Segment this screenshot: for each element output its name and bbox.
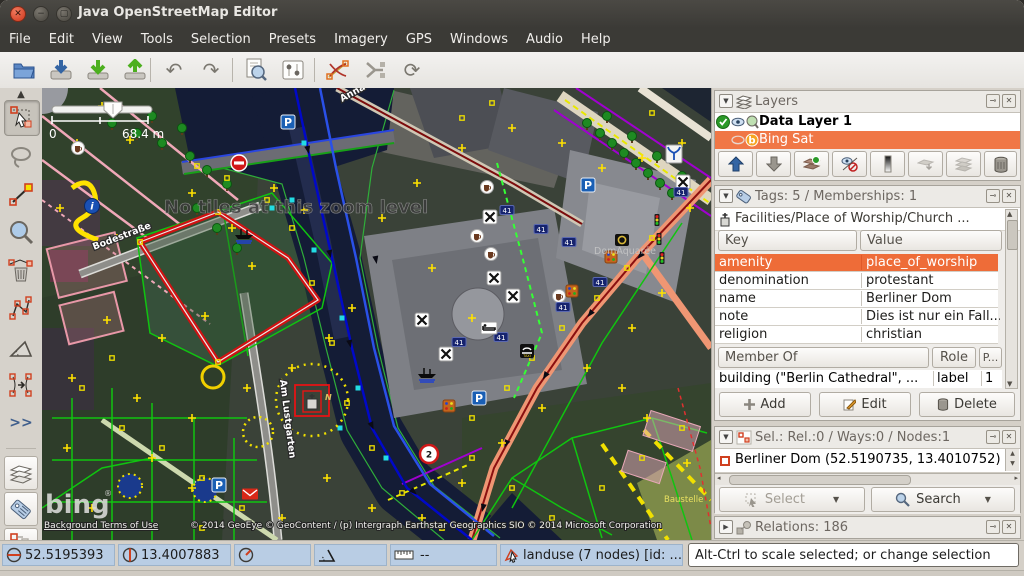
terms-of-use-link[interactable]: Background Terms of Use bbox=[44, 521, 159, 531]
tag-row[interactable]: nameBerliner Dom bbox=[715, 290, 998, 308]
select-button[interactable]: Select ▼ bbox=[719, 487, 865, 512]
update-data-icon[interactable]: ⟳ bbox=[396, 55, 428, 85]
toggle-visibility-button[interactable] bbox=[832, 151, 867, 177]
angle-field bbox=[314, 544, 387, 566]
draw-node-tool-button[interactable] bbox=[4, 178, 38, 212]
delete-tool-button[interactable] bbox=[4, 254, 38, 288]
heading-icon bbox=[238, 547, 254, 563]
collapse-icon[interactable]: ▼ bbox=[719, 189, 733, 203]
dropdown-arrow-icon: ▼ bbox=[833, 495, 839, 504]
sidebar-separator bbox=[6, 448, 36, 449]
longitude-field: 13.4007883 bbox=[118, 544, 231, 566]
copyright-text: © 2014 GeoEye © GeoContent / (p) Intergr… bbox=[190, 521, 662, 531]
title-bar: ✕ − ▢ Java OpenStreetMap Editor bbox=[0, 0, 1024, 28]
minimize-button[interactable]: − bbox=[33, 6, 49, 22]
dropdown-arrow-icon: ▼ bbox=[985, 495, 991, 504]
angle-icon bbox=[318, 548, 336, 563]
node-icon bbox=[719, 455, 731, 467]
delete-tag-button[interactable]: Delete bbox=[919, 392, 1015, 417]
relations-panel-header: ▶ Relations: 186 ⊸ ✕ bbox=[715, 517, 1020, 538]
latitude-field: 52.5195393 bbox=[2, 544, 115, 566]
sticky-pin-icon[interactable]: ⊸ bbox=[986, 520, 1000, 534]
panel-close-icon[interactable]: ✕ bbox=[1002, 430, 1016, 444]
heading-field bbox=[234, 544, 311, 566]
sticky-pin-icon[interactable]: ⊸ bbox=[986, 189, 1000, 203]
selection-panel-header: ▼ Sel.: Rel.:0 / Ways:0 / Nodes:1 ⊸ ✕ bbox=[715, 427, 1020, 449]
ruler-icon bbox=[394, 549, 414, 561]
hovered-object-field: landuse (7 nodes) [id: ... bbox=[500, 544, 683, 566]
tags-panel-title: Tags: 5 / Memberships: 1 bbox=[755, 189, 917, 204]
tag-row[interactable]: religionchristian bbox=[715, 326, 998, 344]
tags-panel-header: ▼ Tags: 5 / Memberships: 1 ⊸ ✕ bbox=[715, 186, 1020, 208]
menu-presets[interactable]: Presets bbox=[260, 28, 325, 47]
layers-dialog-button[interactable] bbox=[4, 456, 38, 490]
menu-audio[interactable]: Audio bbox=[517, 28, 572, 47]
selection-hscrollbar[interactable]: ◂ ▸ bbox=[715, 473, 1020, 485]
unglue-tool-button[interactable] bbox=[4, 292, 38, 326]
longitude-icon bbox=[122, 547, 138, 563]
activate-layer-button[interactable] bbox=[946, 151, 981, 177]
svg-text:b: b bbox=[748, 136, 755, 147]
tags-icon bbox=[736, 189, 752, 204]
position-header[interactable]: P... bbox=[979, 347, 1002, 368]
role-header[interactable]: Role bbox=[932, 347, 976, 368]
layer-row-data-layer[interactable]: Data Layer 1 bbox=[715, 113, 1020, 131]
active-layer-check-icon bbox=[717, 116, 730, 129]
layers-panel-header: ▼ Layers ⊸ ✕ bbox=[715, 91, 1020, 113]
josm-window: ✕ − ▢ Java OpenStreetMap Editor FileEdit… bbox=[0, 0, 1024, 576]
membership-row[interactable]: building ("Berlin Cathedral", ... label … bbox=[715, 370, 1002, 388]
menu-help[interactable]: Help bbox=[572, 28, 620, 47]
svg-text:i: i bbox=[90, 202, 94, 213]
merge-tool-button[interactable] bbox=[4, 368, 38, 402]
main-toolbar: ↶ ↷ ⟳ bbox=[0, 52, 1024, 89]
domaquaree-label: DomAquarée bbox=[594, 246, 656, 257]
latitude-icon bbox=[6, 547, 22, 563]
delete-layer-button[interactable] bbox=[984, 151, 1017, 177]
menu-edit[interactable]: Edit bbox=[40, 28, 83, 47]
preferences-icon[interactable] bbox=[277, 55, 309, 85]
menu-tools[interactable]: Tools bbox=[132, 28, 182, 47]
more-tools-button[interactable]: >> bbox=[4, 406, 38, 440]
split-way-icon[interactable] bbox=[322, 55, 354, 85]
upload-data-icon[interactable] bbox=[119, 55, 151, 85]
relations-panel: ▶ Relations: 186 ⊸ ✕ bbox=[714, 516, 1021, 539]
download-data-icon[interactable] bbox=[82, 55, 114, 85]
collapse-icon[interactable]: ▼ bbox=[719, 430, 733, 444]
layer-row-bing-sat[interactable]: b Bing Sat bbox=[715, 131, 1020, 149]
download-osm-icon[interactable] bbox=[45, 55, 77, 85]
expand-icon[interactable]: ▶ bbox=[719, 520, 733, 534]
toolbar-separator bbox=[232, 58, 233, 82]
svg-text:68.4 m: 68.4 m bbox=[122, 127, 164, 141]
menu-gps[interactable]: GPS bbox=[397, 28, 441, 47]
zoom-tool-button[interactable] bbox=[4, 216, 38, 250]
svg-text:2: 2 bbox=[426, 451, 432, 461]
layer-name: Bing Sat bbox=[759, 132, 813, 147]
duplicate-layer-button[interactable] bbox=[908, 151, 943, 177]
merge-layer-button[interactable] bbox=[794, 151, 829, 177]
list-spinner[interactable]: ▲▼ bbox=[1005, 449, 1019, 471]
panel-close-icon[interactable]: ✕ bbox=[1002, 189, 1016, 203]
relations-panel-title: Relations: 186 bbox=[755, 520, 848, 535]
undo-icon[interactable]: ↶ bbox=[158, 55, 190, 85]
status-bar: 52.5195393 13.4007883 -- landuse (7 node… bbox=[0, 540, 1024, 571]
layer-name: Data Layer 1 bbox=[759, 114, 852, 129]
selection-panel-title: Sel.: Rel.:0 / Ways:0 / Nodes:1 bbox=[755, 430, 950, 445]
panel-close-icon[interactable]: ✕ bbox=[1002, 520, 1016, 534]
move-layer-up-button[interactable] bbox=[718, 151, 753, 177]
add-tag-button[interactable]: Add bbox=[719, 392, 811, 417]
edit-toolbar: ▲ >> bbox=[0, 88, 43, 540]
bing-logo: bing bbox=[45, 490, 110, 520]
no-tiles-message: No tiles at this zoom level bbox=[164, 197, 428, 218]
search-objects-icon[interactable] bbox=[240, 55, 272, 85]
baustelle-label: Baustelle bbox=[664, 495, 703, 505]
sticky-pin-icon[interactable]: ⊸ bbox=[986, 430, 1000, 444]
key-column-header[interactable]: Key bbox=[718, 230, 857, 251]
open-file-icon[interactable] bbox=[8, 55, 40, 85]
panel-close-icon[interactable]: ✕ bbox=[1002, 94, 1016, 108]
pointer-icon bbox=[504, 547, 520, 563]
tag-row[interactable]: denominationprotestant bbox=[715, 272, 998, 290]
scroll-up-icon[interactable]: ▲ bbox=[8, 89, 34, 100]
selection-list-item[interactable]: Berliner Dom (52.5190735, 13.4010752) ▲▼ bbox=[715, 449, 1020, 473]
search-button[interactable]: Search ▼ bbox=[871, 487, 1015, 512]
right-dock: ▼ Layers ⊸ ✕ Data Layer 1 b bbox=[711, 88, 1024, 540]
combine-way-icon[interactable] bbox=[359, 55, 391, 85]
lasso-tool-button[interactable] bbox=[4, 140, 38, 174]
value-column-header[interactable]: Value bbox=[860, 230, 1002, 251]
select-tool-button[interactable] bbox=[4, 100, 40, 136]
toolbar-separator bbox=[314, 58, 315, 82]
move-layer-down-button[interactable] bbox=[756, 151, 791, 177]
tags-scrollbar[interactable]: ▲ ▼ bbox=[1005, 209, 1018, 389]
menu-file[interactable]: File bbox=[0, 28, 40, 47]
close-button[interactable]: ✕ bbox=[10, 6, 26, 22]
svg-text:N: N bbox=[325, 393, 332, 402]
layers-panel: ▼ Layers ⊸ ✕ Data Layer 1 b bbox=[714, 90, 1021, 181]
menu-windows[interactable]: Windows bbox=[441, 28, 517, 47]
layers-icon bbox=[736, 94, 752, 109]
search-icon bbox=[895, 492, 910, 507]
tag-row[interactable]: noteDies ist nur ein Fall... bbox=[715, 308, 998, 326]
toolbar-separator bbox=[150, 58, 151, 82]
collapse-icon[interactable]: ▼ bbox=[719, 94, 733, 108]
angle-tool-button[interactable] bbox=[4, 330, 38, 364]
selection-panel: ▼ Sel.: Rel.:0 / Ways:0 / Nodes:1 ⊸ ✕ Be… bbox=[714, 426, 1021, 513]
menu-imagery[interactable]: Imagery bbox=[325, 28, 397, 47]
svg-text:0: 0 bbox=[49, 127, 57, 141]
member-of-header[interactable]: Member Of bbox=[718, 347, 929, 368]
tag-row[interactable]: amenityplace_of_worship bbox=[715, 254, 998, 272]
distance-field: -- bbox=[390, 544, 497, 566]
tags-dialog-button[interactable] bbox=[4, 492, 38, 526]
status-help-box: Alt-Ctrl to scale selected; or change se… bbox=[688, 543, 1019, 567]
preset-row[interactable]: Facilities/Place of Worship/Church ... bbox=[715, 208, 1020, 231]
select-icon bbox=[745, 493, 759, 507]
svg-text:TAXI: TAXI bbox=[522, 354, 530, 358]
church-preset-icon bbox=[718, 211, 732, 227]
selection-icon bbox=[736, 430, 752, 445]
svg-text:®: ® bbox=[104, 489, 112, 498]
layer-opacity-button[interactable] bbox=[870, 151, 905, 177]
layers-panel-title: Layers bbox=[755, 94, 798, 109]
window-bottom-edge bbox=[0, 570, 1024, 576]
preset-label: Facilities/Place of Worship/Church ... bbox=[735, 211, 970, 226]
redo-icon[interactable]: ↷ bbox=[195, 55, 227, 85]
menu-view[interactable]: View bbox=[83, 28, 132, 47]
maximize-button[interactable]: ▢ bbox=[56, 6, 72, 22]
sticky-pin-icon[interactable]: ⊸ bbox=[986, 94, 1000, 108]
relations-icon bbox=[736, 520, 752, 535]
window-title: Java OpenStreetMap Editor bbox=[78, 5, 277, 20]
menu-bar: FileEditViewToolsSelectionPresetsImagery… bbox=[0, 28, 1024, 53]
tags-panel: ▼ Tags: 5 / Memberships: 1 ⊸ ✕ Facilitie… bbox=[714, 185, 1021, 421]
map-canvas[interactable]: P 41 bbox=[42, 88, 711, 540]
edit-tag-button[interactable]: Edit bbox=[819, 392, 911, 417]
menu-selection[interactable]: Selection bbox=[182, 28, 260, 47]
